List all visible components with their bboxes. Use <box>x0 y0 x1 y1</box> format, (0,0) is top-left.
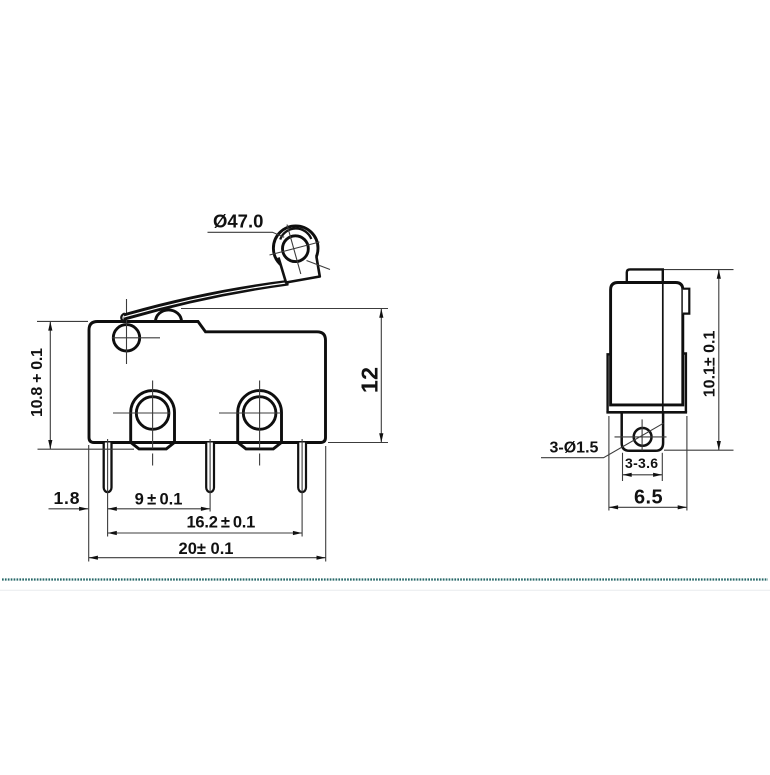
svg-text:20± 0.1: 20± 0.1 <box>179 540 234 558</box>
svg-text:12: 12 <box>357 367 383 393</box>
svg-text:6.5: 6.5 <box>634 487 663 509</box>
svg-text:10.1± 0.1: 10.1± 0.1 <box>702 330 719 397</box>
svg-text:3-Ø1.5: 3-Ø1.5 <box>550 439 599 456</box>
svg-text:Ø47.0: Ø47.0 <box>213 211 263 232</box>
svg-text:10.8 + 0.1: 10.8 + 0.1 <box>29 348 46 417</box>
svg-text:9 ± 0.1: 9 ± 0.1 <box>135 491 183 509</box>
svg-text:16.2 ± 0.1: 16.2 ± 0.1 <box>186 514 255 532</box>
svg-text:1.8: 1.8 <box>54 488 81 508</box>
svg-text:3-3.6: 3-3.6 <box>625 455 658 471</box>
